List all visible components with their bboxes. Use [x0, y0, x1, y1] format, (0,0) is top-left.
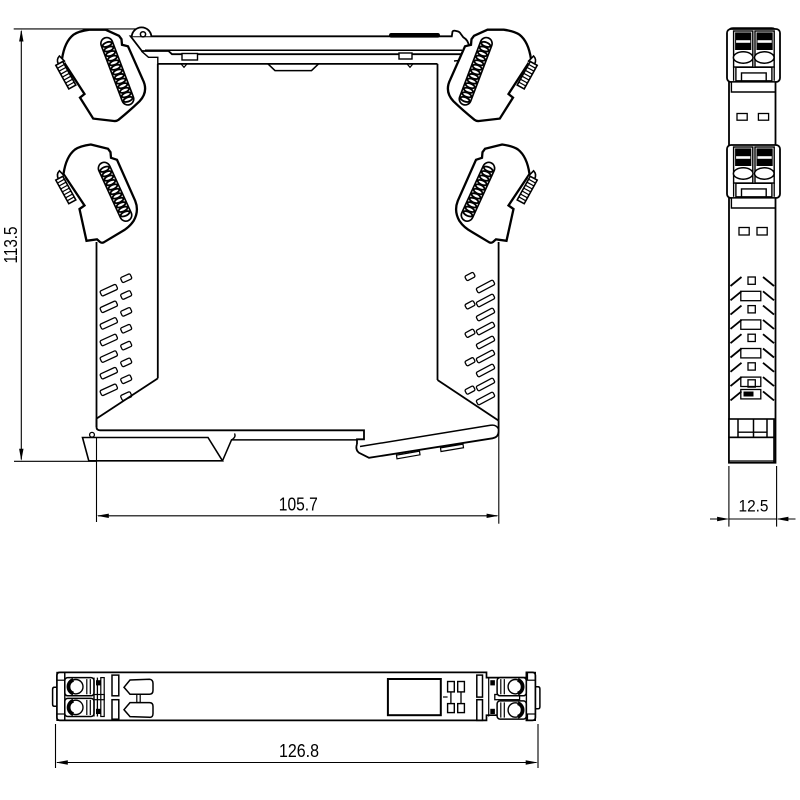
svg-text:105.7: 105.7 [279, 495, 318, 515]
svg-text:113.5: 113.5 [1, 227, 21, 264]
svg-text:12.5: 12.5 [739, 497, 769, 516]
svg-text:126.8: 126.8 [279, 741, 319, 761]
